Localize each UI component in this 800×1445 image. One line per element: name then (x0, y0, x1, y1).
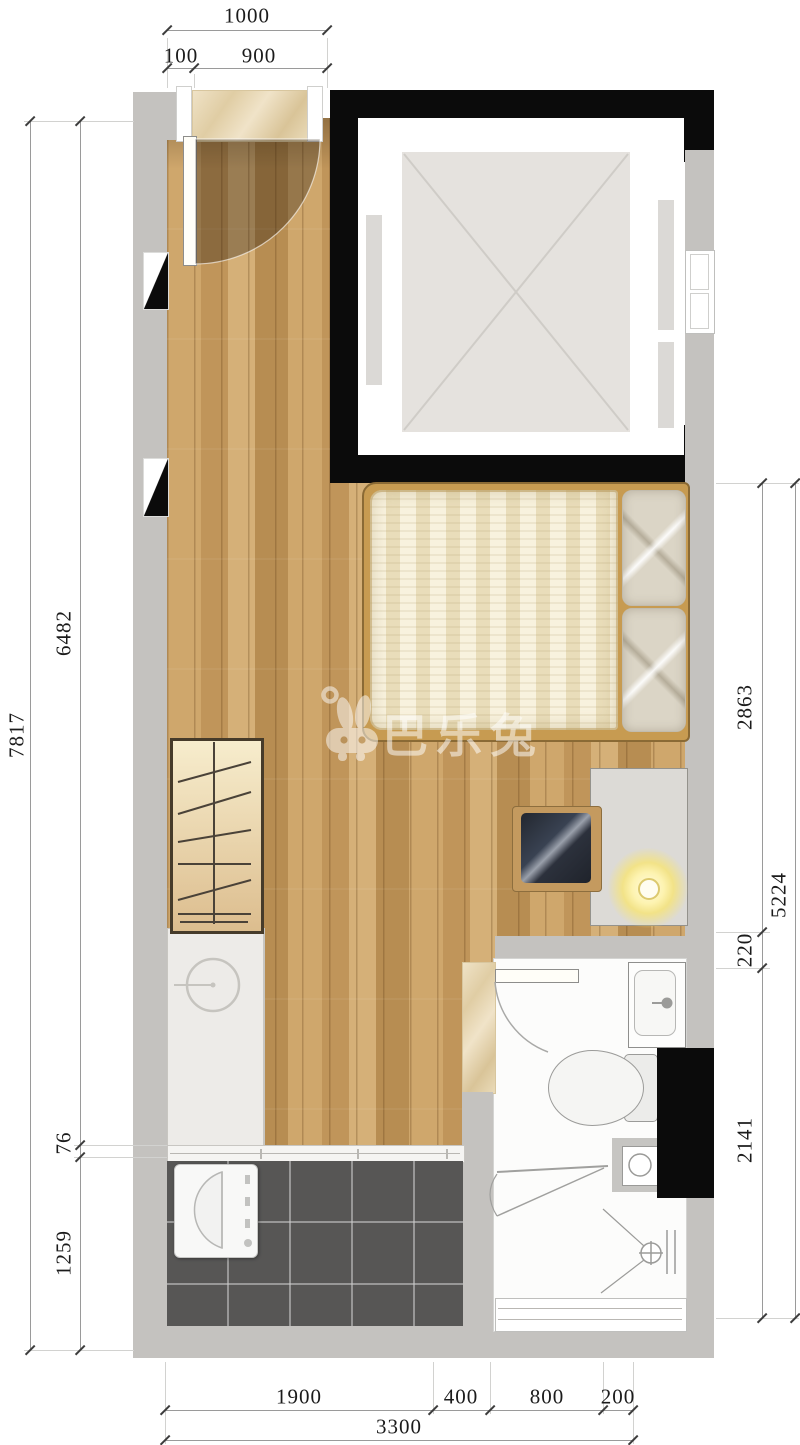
shower-door-icon (490, 1166, 608, 1216)
rabbit-logo-icon (320, 682, 380, 762)
witness-line (327, 38, 328, 88)
dim-label: 76 (52, 1132, 77, 1155)
dim-label: 100 (164, 44, 199, 69)
dim-line (80, 121, 81, 1350)
watermark-text: 巴乐兔 (382, 700, 544, 766)
witness-line (165, 1362, 166, 1444)
dim-label: 7817 (5, 712, 30, 758)
dim-line (30, 121, 31, 1350)
dim-line (165, 1410, 633, 1411)
witness-line (716, 1318, 799, 1319)
faucet-icon (652, 998, 673, 1009)
witness-line (74, 1145, 167, 1146)
elevator-cross-icon (404, 154, 628, 430)
witness-line (74, 1157, 167, 1158)
drain-circle-icon (629, 1154, 651, 1176)
witness-line (194, 74, 195, 88)
wardrobe-hangers-icon (178, 742, 251, 924)
dim-line (167, 30, 328, 31)
dim-label: 400 (444, 1385, 479, 1410)
dim-label: 5224 (767, 872, 792, 918)
dim-label: 220 (733, 933, 758, 968)
dim-label: 800 (530, 1385, 565, 1410)
dim-line (165, 1440, 633, 1441)
entry-door-swing-icon (195, 139, 320, 264)
dim-label: 200 (601, 1385, 636, 1410)
washer-drum-icon (194, 1172, 222, 1248)
dim-label: 1259 (52, 1230, 77, 1276)
dim-label: 3300 (376, 1415, 422, 1440)
dim-label: 1000 (224, 4, 270, 29)
dim-line (795, 483, 796, 1318)
floor-plan: 巴乐兔 1000 100 900 7817 6482 76 1259 2863 … (0, 0, 800, 1445)
shower-head-icon (601, 1209, 675, 1293)
dim-label: 900 (242, 44, 277, 69)
bathroom-door-swing-icon (495, 982, 548, 1052)
witness-line (716, 483, 799, 484)
dim-label: 1900 (276, 1385, 322, 1410)
sink-icon (174, 959, 239, 1011)
dim-label: 2141 (733, 1117, 758, 1163)
dim-label: 6482 (52, 610, 77, 656)
dim-line (762, 483, 763, 1318)
dim-label: 2863 (733, 684, 758, 730)
